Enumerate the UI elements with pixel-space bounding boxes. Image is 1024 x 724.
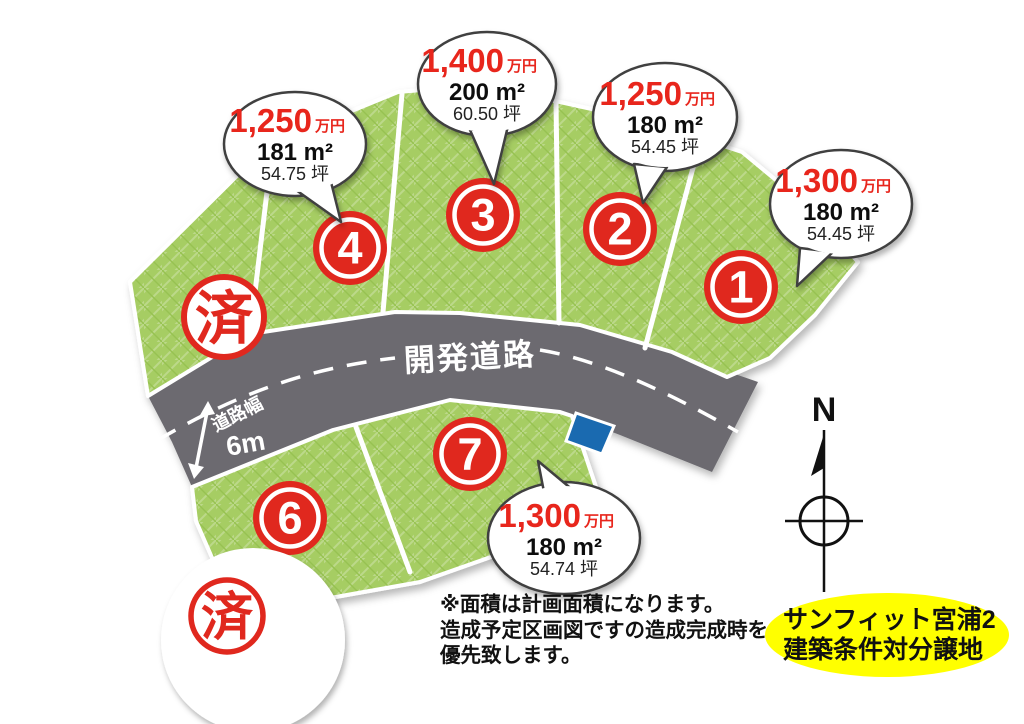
svg-text:1,250: 1,250 bbox=[599, 75, 682, 112]
svg-text:6: 6 bbox=[277, 493, 302, 544]
svg-text:万円: 万円 bbox=[314, 118, 345, 135]
svg-text:済: 済 bbox=[195, 287, 254, 352]
svg-text:1,300: 1,300 bbox=[498, 497, 581, 534]
svg-text:54.45 坪: 54.45 坪 bbox=[807, 224, 875, 244]
svg-text:4: 4 bbox=[337, 223, 362, 274]
title-line-1: サンフィット宮浦2 bbox=[783, 605, 996, 634]
svg-text:1,400: 1,400 bbox=[421, 42, 504, 79]
svg-text:1,300: 1,300 bbox=[775, 162, 858, 199]
svg-text:2: 2 bbox=[607, 204, 632, 255]
svg-text:181 m²: 181 m² bbox=[257, 139, 333, 166]
plot-1-badge: 1 bbox=[704, 250, 778, 324]
sold-stamp-lower-left: 済 bbox=[161, 548, 345, 724]
title-line-2: 建築条件対分譲地 bbox=[783, 635, 983, 664]
compass-north-label: N bbox=[812, 391, 837, 429]
svg-text:54.75 坪: 54.75 坪 bbox=[261, 164, 329, 184]
sold-stamp-upper-left: 済 bbox=[184, 277, 264, 357]
site-plan-map: 開発道路 道路幅 6m 1 2 3 4 bbox=[0, 0, 1024, 724]
plot-3-badge: 3 bbox=[446, 178, 520, 252]
svg-text:万円: 万円 bbox=[860, 178, 891, 195]
svg-text:7: 7 bbox=[457, 429, 482, 480]
svg-text:3: 3 bbox=[470, 190, 495, 241]
compass-arrow-flag bbox=[811, 434, 824, 476]
svg-text:1,250: 1,250 bbox=[229, 102, 312, 139]
svg-text:180 m²: 180 m² bbox=[526, 534, 602, 561]
svg-text:60.50 坪: 60.50 坪 bbox=[453, 104, 521, 124]
svg-text:54.45 坪: 54.45 坪 bbox=[631, 137, 699, 157]
plan-note: ※面積は計画面積になります。 造成予定区画図ですの造成完成時を 優先致します。 bbox=[439, 592, 768, 667]
svg-text:1: 1 bbox=[728, 262, 753, 313]
plot-6-badge: 6 bbox=[253, 481, 327, 555]
svg-text:200 m²: 200 m² bbox=[449, 79, 525, 106]
note-line-3: 優先致します。 bbox=[439, 643, 581, 667]
plot-7-badge: 7 bbox=[433, 417, 507, 491]
svg-text:54.74 坪: 54.74 坪 bbox=[530, 559, 598, 579]
plot-2-badge: 2 bbox=[583, 192, 657, 266]
svg-text:万円: 万円 bbox=[684, 91, 715, 108]
note-line-1: ※面積は計画面積になります。 bbox=[440, 592, 724, 616]
note-line-2: 造成予定区画図ですの造成完成時を bbox=[440, 618, 768, 642]
divider-3-2 bbox=[556, 101, 559, 323]
svg-text:180 m²: 180 m² bbox=[803, 199, 879, 226]
project-title: サンフィット宮浦2 建築条件対分譲地 bbox=[765, 593, 1009, 677]
compass: N bbox=[785, 391, 863, 592]
road-name-label: 開発道路 bbox=[403, 337, 537, 379]
svg-text:万円: 万円 bbox=[583, 513, 614, 530]
land-subdivision-flyer: 開発道路 道路幅 6m 1 2 3 4 bbox=[0, 0, 1024, 724]
svg-text:180 m²: 180 m² bbox=[627, 112, 703, 139]
plot-4-badge: 4 bbox=[313, 211, 387, 285]
svg-text:万円: 万円 bbox=[506, 58, 537, 75]
svg-text:済: 済 bbox=[201, 589, 254, 647]
